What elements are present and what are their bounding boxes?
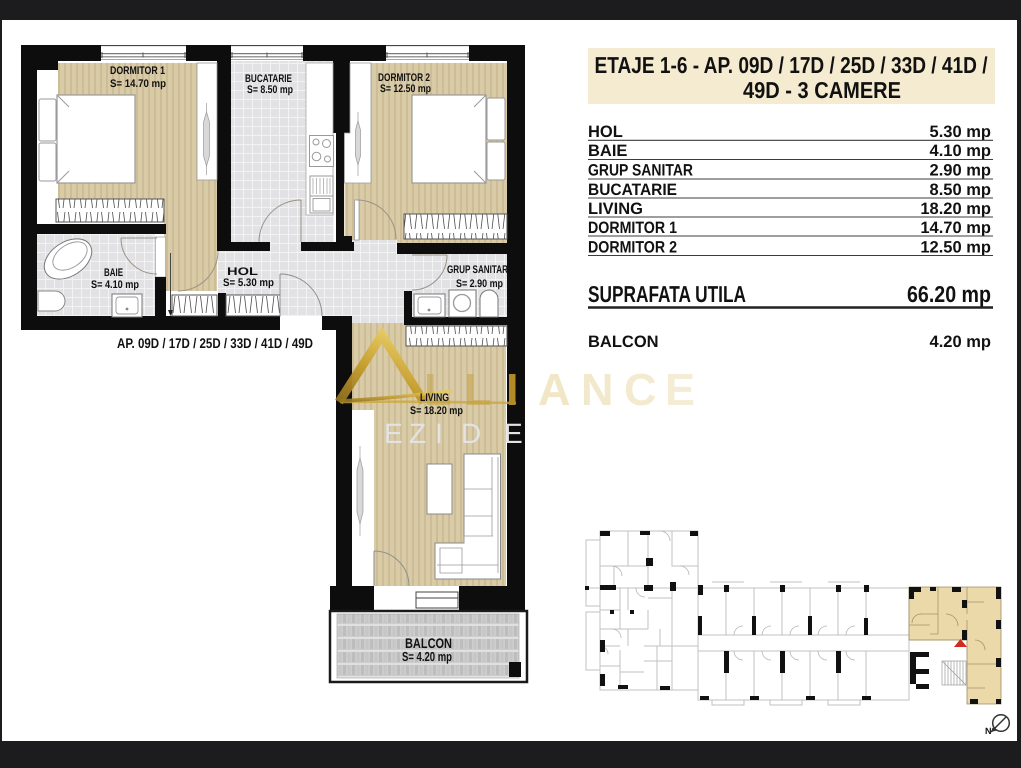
- svg-text:12.50 mp: 12.50 mp: [920, 239, 991, 257]
- svg-text:E: E: [504, 418, 523, 449]
- svg-text:DORMITOR 1: DORMITOR 1: [588, 219, 677, 237]
- svg-text:4.20 mp: 4.20 mp: [930, 333, 991, 351]
- svg-text:SUPRAFATA UTILA: SUPRAFATA UTILA: [588, 281, 746, 307]
- svg-text:AP. 09D / 17D / 25D / 33D / 4: AP. 09D / 17D / 25D / 33D / 41D / 49D: [117, 335, 313, 351]
- svg-text:14.70 mp: 14.70 mp: [920, 219, 991, 237]
- svg-text:N: N: [581, 364, 614, 415]
- svg-text:Z: Z: [409, 418, 426, 449]
- svg-text:DORMITOR 1: DORMITOR 1: [110, 65, 165, 77]
- svg-text:BAIE: BAIE: [588, 142, 627, 160]
- svg-text:S= 12.50 mp: S= 12.50 mp: [380, 83, 431, 95]
- svg-text:BAIE: BAIE: [104, 267, 123, 279]
- svg-text:L: L: [464, 364, 492, 415]
- svg-text:DORMITOR 2: DORMITOR 2: [588, 239, 677, 257]
- svg-text:E: E: [384, 418, 403, 449]
- svg-text:BUCATARIE: BUCATARIE: [588, 181, 677, 199]
- svg-text:D: D: [461, 418, 481, 449]
- svg-text:I: I: [506, 364, 519, 415]
- svg-text:E: E: [665, 364, 695, 415]
- svg-text:BALCON: BALCON: [588, 333, 659, 351]
- svg-text:2.90 mp: 2.90 mp: [930, 162, 991, 180]
- svg-text:S= 18.20 mp: S= 18.20 mp: [410, 405, 463, 417]
- svg-text:49D - 3 CAMERE: 49D - 3 CAMERE: [743, 77, 901, 103]
- svg-text:LIVING: LIVING: [588, 200, 643, 218]
- svg-text:S= 4.20 mp: S= 4.20 mp: [402, 649, 452, 664]
- svg-text:66.20 mp: 66.20 mp: [907, 281, 991, 307]
- svg-text:A: A: [538, 364, 571, 415]
- svg-text:GRUP SANITAR: GRUP SANITAR: [447, 264, 508, 276]
- svg-text:4.10 mp: 4.10 mp: [930, 142, 991, 160]
- svg-text:S= 8.50 mp: S= 8.50 mp: [247, 84, 293, 96]
- svg-text:GRUP SANITAR: GRUP SANITAR: [588, 162, 693, 180]
- svg-text:18.20 mp: 18.20 mp: [920, 200, 991, 218]
- svg-text:I: I: [435, 418, 443, 449]
- svg-text:ETAJE 1-6 - AP. 09D / 17D /: ETAJE 1-6 - AP. 09D / 17D / 25D / 33D / …: [595, 52, 988, 78]
- svg-text:S= 5.30 mp: S= 5.30 mp: [223, 277, 274, 289]
- svg-text:S= 4.10 mp: S= 4.10 mp: [91, 279, 139, 291]
- svg-text:S= 14.70 mp: S= 14.70 mp: [110, 78, 166, 90]
- svg-text:HOL: HOL: [588, 123, 623, 141]
- svg-text:LIVING: LIVING: [420, 392, 449, 404]
- svg-text:C: C: [624, 364, 657, 415]
- svg-text:8.50 mp: 8.50 mp: [930, 181, 991, 199]
- svg-text:S= 2.90 mp: S= 2.90 mp: [456, 278, 503, 290]
- svg-text:5.30 mp: 5.30 mp: [930, 123, 991, 141]
- svg-text:N: N: [985, 726, 992, 736]
